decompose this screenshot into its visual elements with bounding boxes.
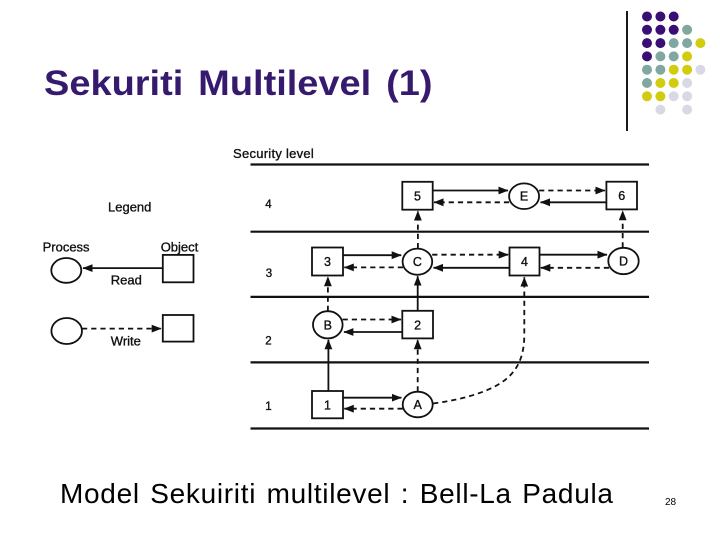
svg-text:Process: Process (43, 240, 90, 255)
svg-text:3: 3 (324, 255, 331, 269)
svg-text:Security level: Security level (233, 146, 314, 161)
svg-text:C: C (413, 255, 422, 269)
svg-text:2: 2 (265, 335, 271, 347)
svg-text:Object: Object (161, 240, 199, 255)
svg-text:Legend: Legend (108, 200, 151, 215)
svg-text:4: 4 (521, 255, 528, 269)
svg-text:3: 3 (266, 268, 272, 280)
svg-text:6: 6 (618, 189, 625, 203)
svg-text:4: 4 (265, 199, 272, 211)
svg-text:A: A (414, 398, 423, 412)
svg-text:Read: Read (111, 273, 142, 288)
svg-text:E: E (520, 190, 528, 204)
svg-text:5: 5 (414, 189, 421, 203)
svg-text:1: 1 (265, 401, 271, 413)
svg-text:B: B (324, 318, 332, 332)
svg-text:Write: Write (111, 334, 141, 349)
svg-text:D: D (619, 255, 628, 269)
svg-text:2: 2 (414, 318, 421, 332)
svg-text:1: 1 (324, 398, 331, 412)
